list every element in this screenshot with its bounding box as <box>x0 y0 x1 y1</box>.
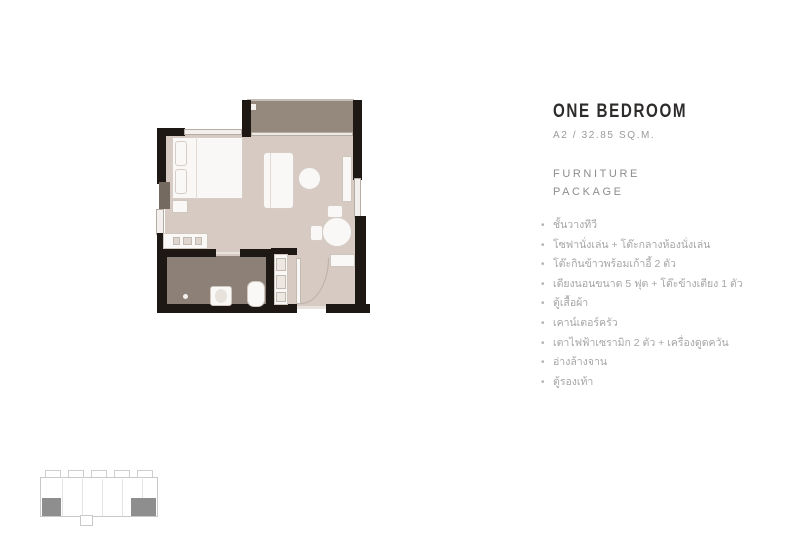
section-title: FURNITURE PACKAGE <box>553 165 783 201</box>
list-item: •เตาไฟฟ้าเซรามิก 2 ตัว + เครื่องดูดควัน <box>541 334 783 354</box>
page: ONE BEDROOM A2 / 32.85 SQ.M. FURNITURE P… <box>0 0 790 539</box>
bullet-icon: • <box>541 354 553 373</box>
list-item-text: โต๊ะกินข้าวพร้อมเก้าอี้ 2 ตัว <box>553 255 676 274</box>
list-item-text: เตาไฟฟ้าเซรามิก 2 ตัว + เครื่องดูดควัน <box>553 334 729 353</box>
list-item: •ตู้เสื้อผ้า <box>541 294 783 314</box>
bullet-icon: • <box>541 295 553 314</box>
bullet-icon: • <box>541 276 553 295</box>
list-item-text: โซฟานั่งเล่น + โต๊ะกลางห้องนั่งเล่น <box>553 236 710 255</box>
bullet-icon: • <box>541 217 553 236</box>
keyplan-divider <box>62 479 63 516</box>
section-title-line2: PACKAGE <box>553 183 783 201</box>
page-title: ONE BEDROOM <box>553 101 737 123</box>
bullet-icon: • <box>541 374 553 393</box>
list-item: •โซฟานั่งเล่น + โต๊ะกลางห้องนั่งเล่น <box>541 236 783 256</box>
list-item-text: เคาน์เตอร์ครัว <box>553 314 618 333</box>
list-item: •ตู้รองเท้า <box>541 373 783 393</box>
list-item-text: ตู้เสื้อผ้า <box>553 294 588 313</box>
bullet-icon: • <box>541 335 553 354</box>
list-item: •เคาน์เตอร์ครัว <box>541 314 783 334</box>
list-item-text: เตียงนอนขนาด 5 ฟุต + โต๊ะข้างเตียง 1 ตัว <box>553 275 743 294</box>
bullet-icon: • <box>541 315 553 334</box>
keyplan-unit-highlight-right <box>131 498 156 516</box>
keyplan-unit-highlight-left <box>42 498 61 516</box>
bullet-icon: • <box>541 256 553 275</box>
list-item-text: ชั้นวางทีวี <box>553 216 597 235</box>
list-item: •อ่างล้างจาน <box>541 353 783 373</box>
list-item: •โต๊ะกินข้าวพร้อมเก้าอี้ 2 ตัว <box>541 255 783 275</box>
unit-subtitle: A2 / 32.85 SQ.M. <box>553 130 783 141</box>
keyplan-divider <box>122 479 123 516</box>
list-item: •ชั้นวางทีวี <box>541 216 783 236</box>
list-item-text: ตู้รองเท้า <box>553 373 593 392</box>
info-panel: ONE BEDROOM A2 / 32.85 SQ.M. FURNITURE P… <box>553 101 783 392</box>
furniture-list: •ชั้นวางทีวี•โซฟานั่งเล่น + โต๊ะกลางห้อง… <box>541 216 783 392</box>
keyplan-divider <box>82 479 83 516</box>
keyplan-divider <box>102 479 103 516</box>
section-title-line1: FURNITURE <box>553 165 783 183</box>
list-item: •เตียงนอนขนาด 5 ฟุต + โต๊ะข้างเตียง 1 ตั… <box>541 275 783 295</box>
list-item-text: อ่างล้างจาน <box>553 353 607 372</box>
keyplan-tab <box>80 515 93 526</box>
bullet-icon: • <box>541 237 553 256</box>
